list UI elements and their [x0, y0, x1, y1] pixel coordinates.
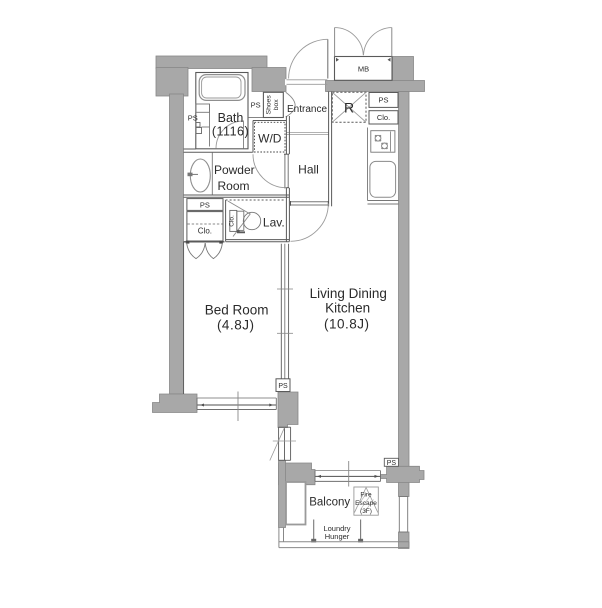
svg-text:PS: PS: [387, 460, 397, 467]
svg-text:W/D: W/D: [258, 132, 282, 146]
svg-text:Escape: Escape: [355, 500, 377, 507]
svg-text:(10.8J): (10.8J): [324, 316, 370, 331]
svg-text:Fire: Fire: [360, 491, 372, 498]
svg-text:Shoes: Shoes: [266, 95, 273, 115]
svg-text:Bed Room: Bed Room: [205, 302, 269, 317]
svg-text:Entrance: Entrance: [287, 104, 327, 115]
svg-text:Balcony: Balcony: [309, 496, 350, 508]
svg-text:PS: PS: [278, 383, 288, 390]
svg-text:Hunger: Hunger: [325, 532, 350, 541]
svg-text:(1116): (1116): [212, 125, 249, 139]
svg-text:(4.8J): (4.8J): [217, 317, 255, 332]
svg-text:box: box: [273, 99, 280, 111]
svg-text:MB: MB: [358, 64, 369, 73]
svg-text:PS: PS: [378, 96, 388, 105]
svg-text:Lav.: Lav.: [263, 216, 285, 230]
svg-text:Kitchen: Kitchen: [325, 301, 370, 316]
svg-text:Living Dining: Living Dining: [310, 286, 387, 301]
svg-text:R: R: [344, 100, 354, 116]
svg-text:Bath: Bath: [218, 111, 244, 125]
svg-text:PS: PS: [200, 201, 210, 210]
svg-text:Hall: Hall: [298, 162, 319, 176]
svg-text:PS: PS: [188, 113, 198, 122]
svg-text:PS: PS: [251, 101, 261, 110]
svg-text:Room: Room: [217, 179, 249, 193]
svg-text:Clo.: Clo.: [229, 215, 236, 227]
svg-text:Clo.: Clo.: [198, 227, 212, 236]
svg-text:(3F): (3F): [360, 508, 372, 515]
svg-text:Powder: Powder: [214, 163, 255, 177]
svg-text:Clo.: Clo.: [377, 113, 390, 122]
